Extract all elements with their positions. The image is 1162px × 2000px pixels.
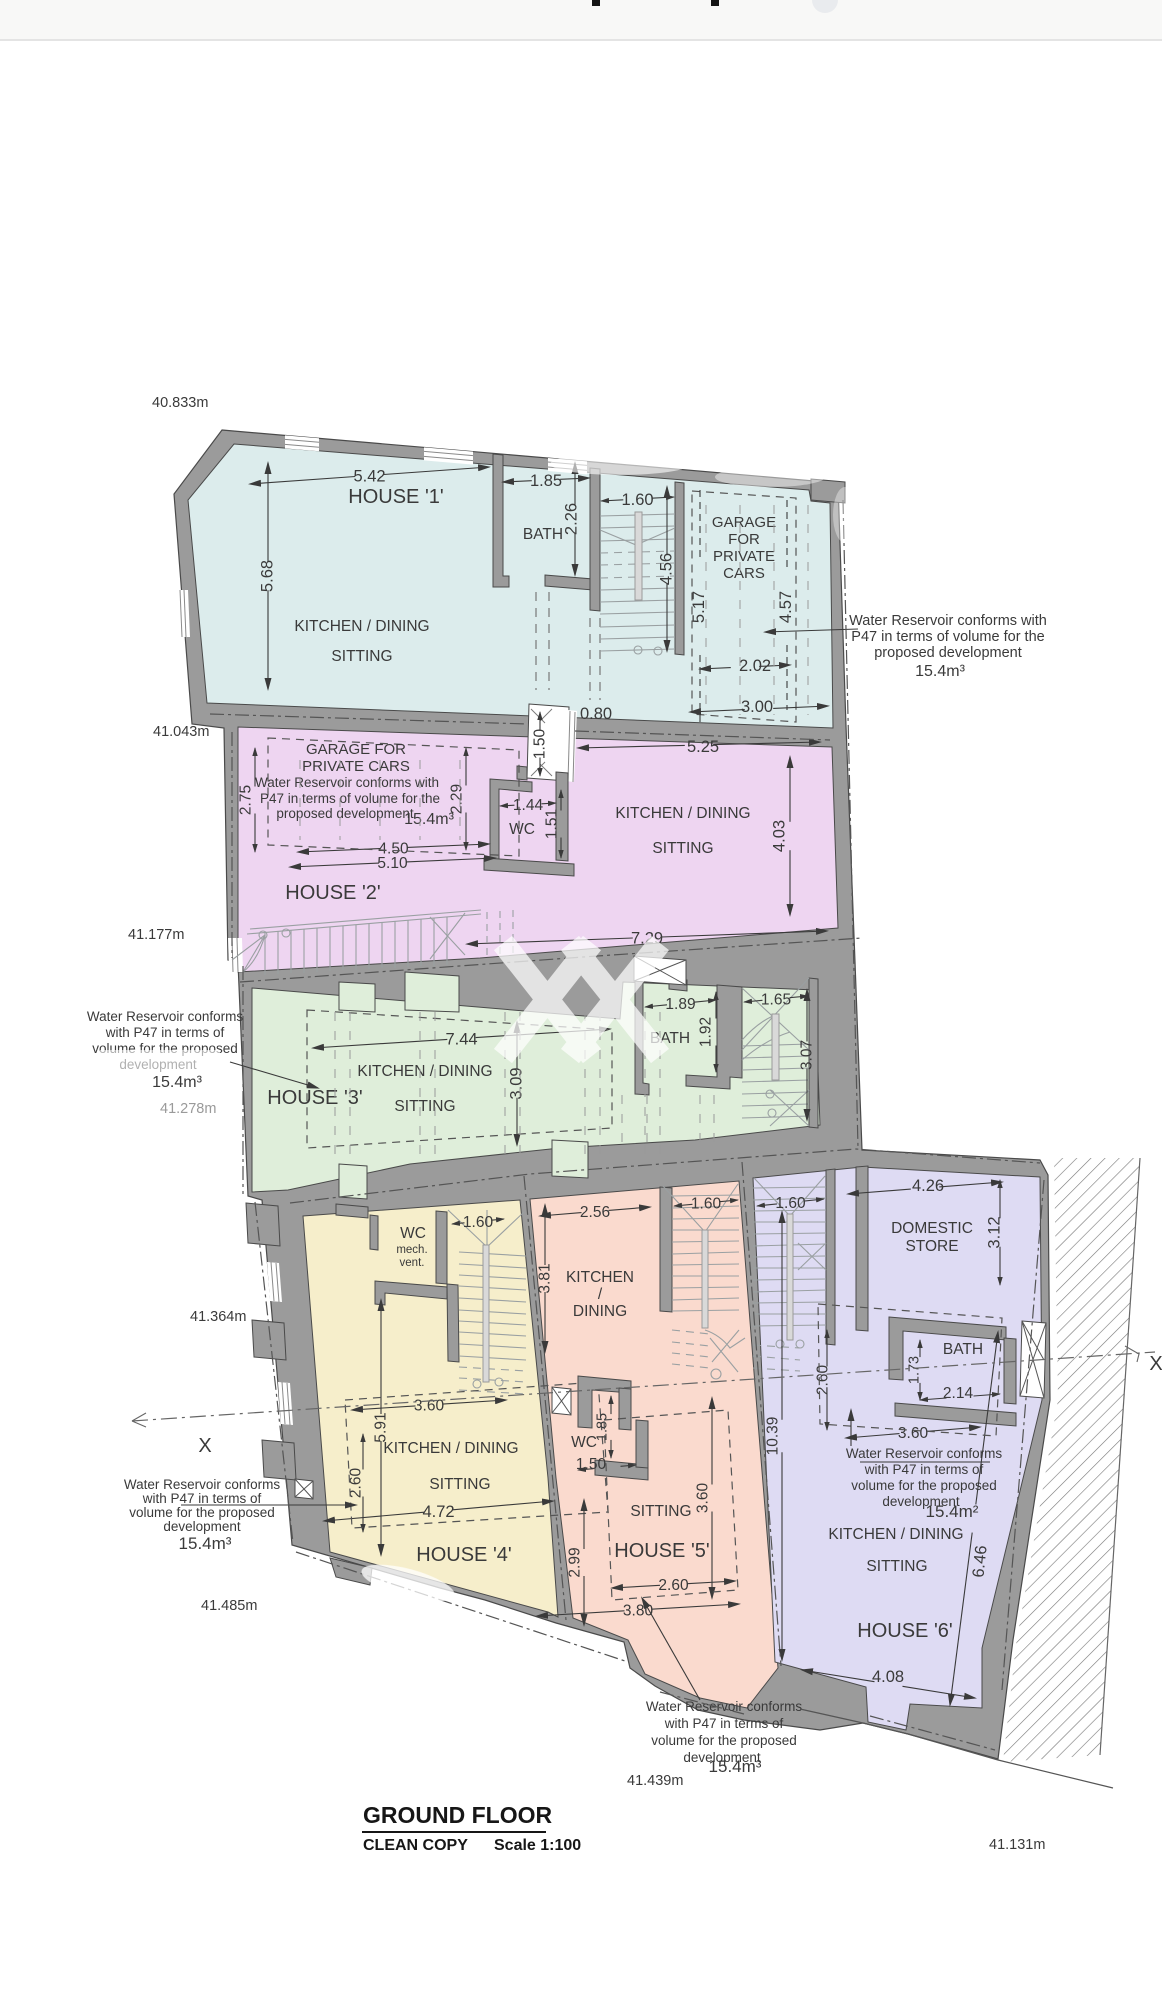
svg-text:2.14: 2.14 <box>943 1385 974 1402</box>
svg-text:5.68: 5.68 <box>259 560 277 592</box>
svg-text:HOUSE '3': HOUSE '3' <box>267 1087 362 1109</box>
svg-text:KITCHEN: KITCHEN <box>566 1269 634 1286</box>
svg-text:15.4m³: 15.4m³ <box>404 811 454 828</box>
svg-text:with P47 in terms of: with P47 in terms of <box>864 1462 984 1477</box>
svg-text:3.07: 3.07 <box>799 1040 816 1070</box>
svg-text:Water Reservoir conforms: Water Reservoir conforms <box>646 1699 803 1714</box>
svg-text:1.60: 1.60 <box>621 491 653 509</box>
svg-text:KITCHEN / DINING: KITCHEN / DINING <box>294 618 429 635</box>
svg-text:1.73: 1.73 <box>907 1356 923 1384</box>
svg-text:3.12: 3.12 <box>986 1216 1004 1248</box>
svg-text:SITTING: SITTING <box>652 840 713 857</box>
svg-text:WC: WC <box>571 1434 597 1451</box>
svg-text:GARAGE: GARAGE <box>712 514 776 531</box>
svg-text:volume for the proposed: volume for the proposed <box>851 1478 997 1493</box>
svg-text:PRIVATE: PRIVATE <box>713 548 775 565</box>
svg-text:1.44: 1.44 <box>513 797 544 814</box>
svg-text:41.439m: 41.439m <box>627 1773 683 1789</box>
svg-text:Scale 1:100: Scale 1:100 <box>494 1837 581 1854</box>
svg-text:40.833m: 40.833m <box>152 395 208 411</box>
svg-text:3.81: 3.81 <box>537 1263 554 1293</box>
svg-text:1.50: 1.50 <box>576 1456 607 1473</box>
svg-text:4.57: 4.57 <box>777 591 795 623</box>
svg-text:KITCHEN / DINING: KITCHEN / DINING <box>828 1526 963 1543</box>
svg-text:1.60: 1.60 <box>775 1195 806 1212</box>
svg-text:15.4m³: 15.4m³ <box>179 1534 232 1553</box>
svg-text:3.09: 3.09 <box>508 1067 526 1099</box>
svg-text:2.26: 2.26 <box>563 503 581 535</box>
svg-text:HOUSE '2': HOUSE '2' <box>285 882 380 904</box>
svg-text:15.4m³: 15.4m³ <box>915 663 965 680</box>
svg-text:DINING: DINING <box>573 1303 627 1320</box>
svg-text:Water Reservoir conforms with: Water Reservoir conforms with <box>255 775 439 790</box>
svg-text:15.4m³: 15.4m³ <box>709 1757 762 1776</box>
svg-text:/: / <box>598 1286 603 1303</box>
svg-text:proposed development: proposed development <box>276 806 414 821</box>
svg-text:1.85: 1.85 <box>530 472 562 490</box>
svg-text:SITTING: SITTING <box>866 1558 927 1575</box>
svg-text:3.00: 3.00 <box>741 698 773 716</box>
svg-text:X: X <box>198 1435 211 1457</box>
svg-text:1.51: 1.51 <box>544 809 561 839</box>
svg-text:P47 in terms of volume for the: P47 in terms of volume for the <box>260 791 440 806</box>
svg-text:5.42: 5.42 <box>353 467 385 485</box>
svg-text:Water Reservoir conforms with: Water Reservoir conforms with <box>849 613 1047 629</box>
svg-text:WC: WC <box>400 1225 426 1242</box>
svg-text:SITTING: SITTING <box>394 1098 455 1115</box>
svg-text:proposed development: proposed development <box>874 645 1022 661</box>
svg-text:HOUSE '5': HOUSE '5' <box>614 1540 709 1562</box>
svg-text:vent.: vent. <box>400 1257 425 1269</box>
svg-text:Water Reservoir conforms: Water Reservoir conforms <box>846 1446 1003 1461</box>
svg-text:2.99: 2.99 <box>567 1547 584 1577</box>
svg-text:1.65: 1.65 <box>761 992 791 1009</box>
svg-text:SITTING: SITTING <box>429 1476 490 1493</box>
svg-text:41.131m: 41.131m <box>989 1837 1045 1853</box>
svg-text:3.60: 3.60 <box>898 1425 929 1442</box>
svg-text:HOUSE '4': HOUSE '4' <box>416 1544 511 1566</box>
svg-text:mech.: mech. <box>396 1244 427 1256</box>
svg-text:41.278m: 41.278m <box>160 1101 216 1117</box>
svg-text:4.03: 4.03 <box>771 820 789 852</box>
svg-text:7.44: 7.44 <box>445 1030 477 1048</box>
svg-text:Water Reservoir conforms: Water Reservoir conforms <box>124 1477 281 1492</box>
svg-text:KITCHEN / DINING: KITCHEN / DINING <box>357 1063 492 1080</box>
svg-text:1.60: 1.60 <box>463 1214 494 1231</box>
svg-text:5.91: 5.91 <box>373 1412 390 1442</box>
svg-text:2.29: 2.29 <box>449 784 466 814</box>
svg-text:4.08: 4.08 <box>872 1668 904 1686</box>
svg-text:HOUSE '6': HOUSE '6' <box>857 1620 952 1642</box>
svg-text:GARAGE FOR: GARAGE FOR <box>306 741 406 758</box>
svg-text:DOMESTIC: DOMESTIC <box>891 1220 973 1237</box>
svg-text:CARS: CARS <box>723 565 765 582</box>
svg-text:10.39: 10.39 <box>765 1417 782 1456</box>
svg-text:PRIVATE CARS: PRIVATE CARS <box>302 758 410 775</box>
svg-text:2.60: 2.60 <box>658 1577 689 1594</box>
svg-text:volume for the proposed: volume for the proposed <box>651 1733 797 1748</box>
svg-text:2.02: 2.02 <box>739 657 771 675</box>
svg-text:4.56: 4.56 <box>658 553 676 585</box>
svg-text:5.10: 5.10 <box>377 855 408 872</box>
svg-text:3.60: 3.60 <box>414 1398 445 1415</box>
svg-text:with P47 in terms of: with P47 in terms of <box>105 1025 225 1040</box>
svg-text:1.89: 1.89 <box>665 996 695 1013</box>
svg-text:5.17: 5.17 <box>690 591 708 623</box>
svg-text:BATH: BATH <box>523 526 563 543</box>
svg-text:KITCHEN / DINING: KITCHEN / DINING <box>383 1440 518 1457</box>
svg-text:Water Reservoir conforms: Water Reservoir conforms <box>87 1009 244 1024</box>
svg-text:CLEAN COPY: CLEAN COPY <box>363 1837 468 1854</box>
svg-text:6.46: 6.46 <box>969 1545 990 1579</box>
svg-text:15.4m³: 15.4m³ <box>152 1074 202 1091</box>
svg-text:0.80: 0.80 <box>580 705 612 723</box>
svg-text:4.72: 4.72 <box>422 1503 454 1521</box>
svg-text:41.485m: 41.485m <box>201 1598 257 1614</box>
svg-text:2.56: 2.56 <box>580 1204 610 1221</box>
svg-text:WC: WC <box>509 821 535 838</box>
svg-text:1.92: 1.92 <box>698 1017 715 1047</box>
svg-text:1.50: 1.50 <box>532 729 549 760</box>
svg-text:GROUND FLOOR: GROUND FLOOR <box>363 1802 552 1828</box>
svg-text:HOUSE '1': HOUSE '1' <box>348 486 443 508</box>
svg-text:FOR: FOR <box>728 531 760 548</box>
svg-text:41.177m: 41.177m <box>128 927 184 943</box>
svg-text:KITCHEN / DINING: KITCHEN / DINING <box>615 805 750 822</box>
svg-text:SITTING: SITTING <box>331 648 392 665</box>
svg-text:3.60: 3.60 <box>695 1483 712 1514</box>
svg-text:with P47 in terms of: with P47 in terms of <box>142 1491 262 1506</box>
svg-text:2.75: 2.75 <box>238 785 255 815</box>
svg-text:BATH: BATH <box>943 1341 983 1358</box>
svg-text:development: development <box>163 1519 241 1534</box>
svg-text:15.4m²: 15.4m² <box>926 1502 979 1521</box>
svg-text:P47 in terms of volume for the: P47 in terms of volume for the <box>851 629 1044 645</box>
svg-text:41.364m: 41.364m <box>190 1309 246 1325</box>
svg-text:5.25: 5.25 <box>687 738 719 756</box>
svg-text:X: X <box>1149 1353 1162 1375</box>
svg-text:SITTING: SITTING <box>630 1503 691 1520</box>
svg-text:41.043m: 41.043m <box>153 724 209 740</box>
svg-text:1.60: 1.60 <box>691 1196 722 1213</box>
svg-text:STORE: STORE <box>905 1238 958 1255</box>
svg-text:4.26: 4.26 <box>912 1177 944 1195</box>
svg-text:volume for the proposed: volume for the proposed <box>129 1505 275 1520</box>
svg-text:2.60: 2.60 <box>815 1365 832 1396</box>
svg-text:with P47 in terms of: with P47 in terms of <box>664 1716 784 1731</box>
